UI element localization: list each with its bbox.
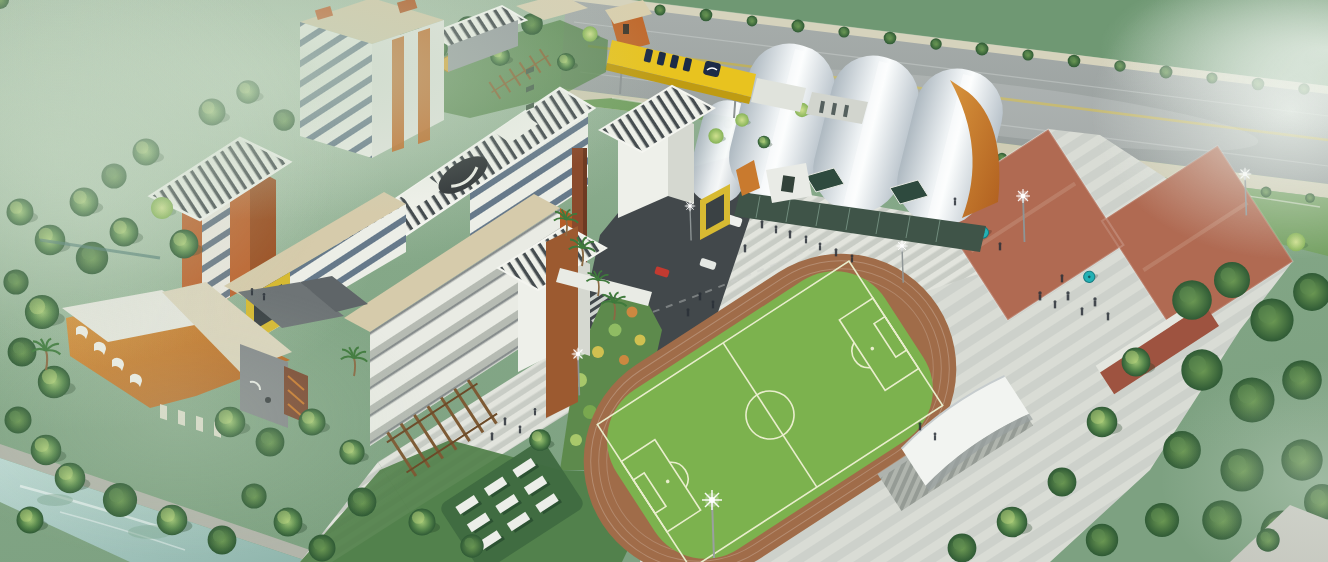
campus-rendering — [0, 0, 1328, 562]
gym-door — [781, 175, 795, 193]
brown-end-wall — [546, 226, 578, 418]
